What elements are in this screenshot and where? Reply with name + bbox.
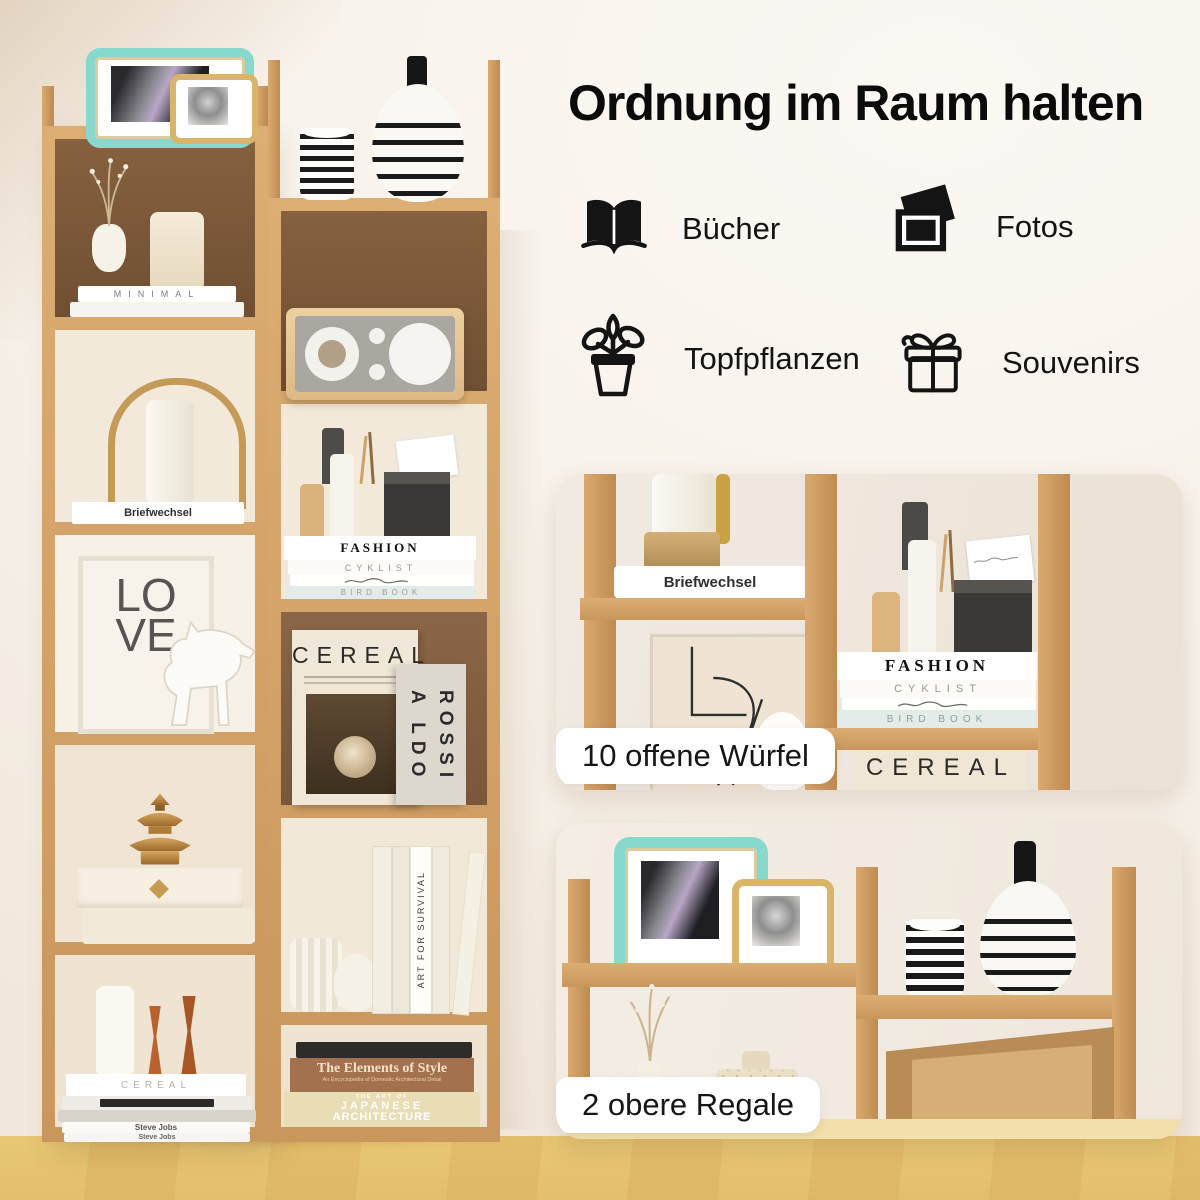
striped-teardrop-vase <box>372 84 464 202</box>
poster-title: CEREAL <box>856 754 1026 782</box>
feature-fotos: Fotos <box>880 182 1074 271</box>
magazine-text-line <box>304 676 406 678</box>
book-gray <box>58 1110 256 1122</box>
vintage-radio <box>286 308 464 400</box>
striped-cup <box>300 128 354 200</box>
book-title: ARCHITECTURE <box>284 1112 480 1123</box>
cup-rim <box>910 919 960 931</box>
radio-knob <box>369 364 385 380</box>
wood-dowel <box>872 592 900 652</box>
headline: Ordnung im Raum halten <box>568 74 1143 132</box>
pillar-candle <box>96 986 134 1074</box>
book-steve-jobs: Steve Jobs <box>64 1133 250 1142</box>
vase-stripes <box>372 123 464 196</box>
magazine-cover-photo <box>306 694 404 794</box>
book-cyklist: CYKLIST <box>840 680 1036 698</box>
frame-photo <box>752 896 800 946</box>
lamp-cylinder <box>146 400 194 502</box>
book-cereal: CEREAL <box>66 1074 246 1096</box>
dried-flowers <box>614 973 686 1065</box>
box-clasp <box>149 879 169 899</box>
aldo-rossi-book: A LDO ROSSI <box>396 664 466 805</box>
book-japanese-architecture: THE ART OF JAPANESE ARCHITECTURE <box>284 1092 480 1127</box>
small-vase <box>92 224 126 272</box>
feature-label: Bücher <box>682 211 780 247</box>
vase-stripes <box>980 919 1076 991</box>
caption-text: 10 offene Würfel <box>582 738 809 774</box>
wood-post <box>1038 474 1070 790</box>
horse-figurine <box>146 610 264 734</box>
radio-tuning-dial <box>305 327 359 381</box>
book-plain <box>70 302 244 317</box>
shelf-rail <box>488 60 500 200</box>
vertical-book <box>372 846 392 1014</box>
shelf-board <box>580 598 806 620</box>
book-bird-book: BIRD BOOK <box>838 710 1036 728</box>
striped-teardrop-vase <box>980 881 1076 997</box>
lamp-gold-base <box>644 532 720 570</box>
cover-photo-lamp <box>334 736 376 778</box>
book-band <box>100 1099 214 1107</box>
caption-badge: 10 offene Würfel <box>556 728 835 784</box>
white-tube <box>330 454 354 536</box>
canister-cap <box>742 1051 770 1071</box>
wood-floor <box>0 1136 1200 1200</box>
feature-label: Souvenirs <box>1002 345 1140 381</box>
radio-speaker <box>389 323 451 385</box>
book-bird-book: BIRD BOOK <box>286 586 476 599</box>
feature-souvenirs: Souvenirs <box>894 322 1140 403</box>
cereal-poster: CEREAL <box>856 750 1026 790</box>
gift-icon <box>894 322 972 403</box>
open-book-icon <box>576 190 652 267</box>
radio-face <box>295 316 455 392</box>
feature-buecher: Bücher <box>576 190 780 267</box>
book-briefwechsel: Briefwechsel <box>614 566 806 598</box>
box-lid <box>954 580 1032 593</box>
feature-label: Fotos <box>996 209 1074 245</box>
photos-icon <box>880 182 966 271</box>
gold-photo-frame <box>170 74 258 144</box>
inset-photo-open-cubes: Briefwechsel FASHION CYKLIST BIRD BOOK C… <box>556 474 1182 790</box>
inset-photo-top-shelves: 2 obere Regale <box>556 823 1182 1139</box>
book-fashion: FASHION <box>284 536 476 560</box>
shelf-board <box>805 728 1070 750</box>
book-subtitle: An Encyclopedia of Domestic Architectura… <box>290 1077 474 1083</box>
potted-plant-icon <box>574 312 654 405</box>
cream-candle <box>150 212 204 288</box>
black-box <box>384 472 450 536</box>
box-lid <box>384 472 450 484</box>
shelf-rail <box>268 60 280 200</box>
book-dark <box>296 1042 472 1058</box>
aldo-rossi-title: A LDO <box>406 690 428 805</box>
shelf-board <box>856 995 1136 1019</box>
dried-flowers <box>78 150 140 226</box>
book-steve-jobs: Steve Jobs <box>62 1122 250 1133</box>
pencil <box>939 534 947 592</box>
feature-topfpflanzen: Topfpflanzen <box>574 312 860 405</box>
aldo-rossi-title: ROSSI <box>434 690 456 805</box>
product-marketing-image: MINIMAL Briefwechsel LO VE CEREAL <box>0 0 1200 1200</box>
pagoda-ornament <box>112 790 208 870</box>
vertical-book <box>432 846 450 1014</box>
book-title: The Elements of Style <box>290 1061 474 1077</box>
frame-photo <box>641 861 719 939</box>
book-script <box>290 575 474 586</box>
cup-rim <box>304 128 350 138</box>
frame-photo <box>188 87 228 125</box>
book-banded <box>62 1096 252 1110</box>
book-fashion: FASHION <box>837 652 1037 680</box>
book-elements-of-style: The Elements of Style An Encyclopedia of… <box>290 1058 474 1092</box>
caption-text: 2 obere Regale <box>582 1087 794 1123</box>
keepsake-box <box>82 908 254 944</box>
vertical-book-art-for-survival: ART FOR SURVIVAL <box>410 846 432 1014</box>
bookshelf-photo: MINIMAL Briefwechsel LO VE CEREAL <box>0 0 556 1140</box>
wood-post <box>1112 867 1136 1138</box>
book-briefwechsel: Briefwechsel <box>72 502 244 524</box>
magazine-text-line <box>304 682 406 684</box>
shelf-board <box>562 963 858 987</box>
black-box <box>954 580 1032 652</box>
dial-knob <box>318 340 346 368</box>
wall-shadow <box>500 230 542 1130</box>
book-cyklist: CYKLIST <box>288 560 474 575</box>
radio-knob <box>369 328 385 344</box>
feature-label: Topfpflanzen <box>684 341 860 377</box>
wood-dowel <box>300 484 324 536</box>
vertical-book <box>392 846 410 1014</box>
keepsake-box <box>76 868 244 908</box>
book-script <box>842 698 1036 710</box>
white-tube <box>908 540 936 652</box>
vertical-book-title: ART FOR SURVIVAL <box>416 871 426 988</box>
caption-badge: 2 obere Regale <box>556 1077 820 1133</box>
book-minimal: MINIMAL <box>78 286 236 302</box>
striped-cup <box>906 919 964 997</box>
